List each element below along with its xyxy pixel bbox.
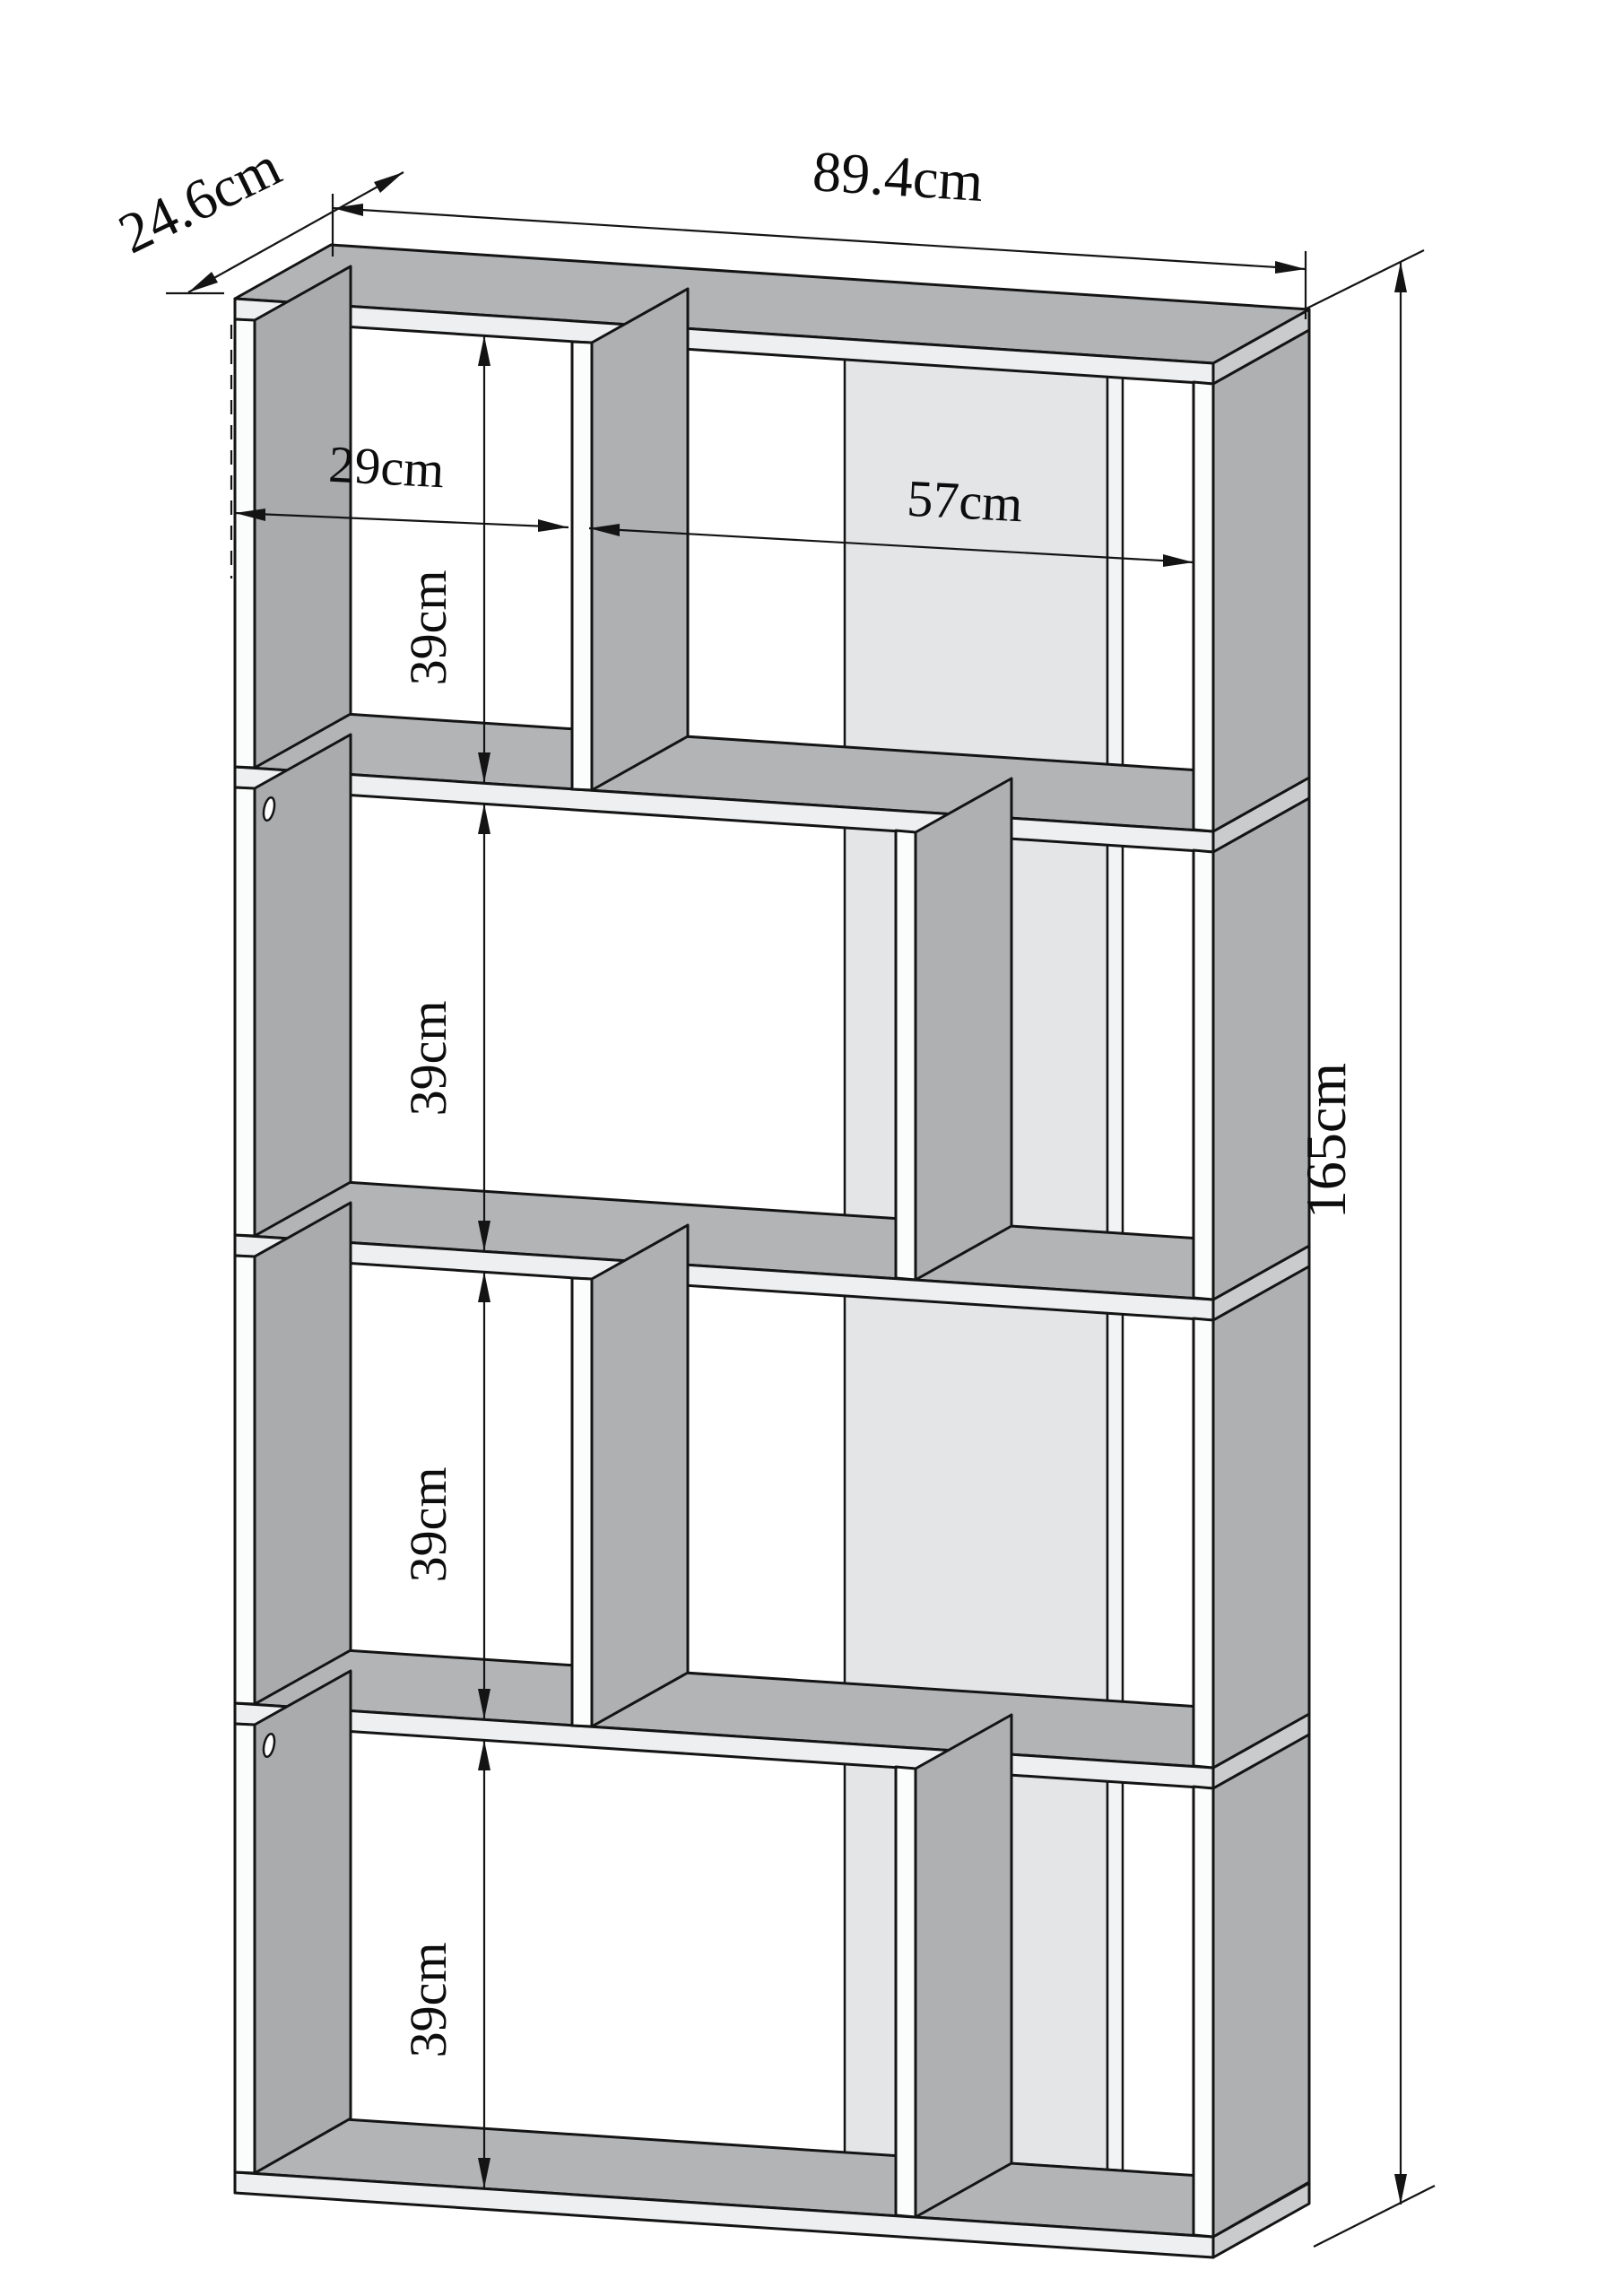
label-tier4-height: 39cm	[399, 1943, 457, 2058]
tier2-divider	[896, 778, 1011, 1280]
label-left-compartment: 29cm	[327, 435, 446, 500]
dim-tier2-height: 39cm	[399, 804, 490, 1251]
dim-tier4-height: 39cm	[399, 1740, 490, 2188]
bookshelf-dimension-drawing: 89.4cm 24.6cm 165cm 29cm 57cm 39cm	[0, 0, 1606, 2296]
tier3-divider	[572, 1225, 688, 1726]
tier1-divider	[572, 289, 688, 790]
dim-overall-height: 165cm	[1294, 250, 1435, 2247]
label-tier3-height: 39cm	[399, 1467, 457, 1583]
tier4-divider	[896, 1715, 1011, 2217]
label-overall-height: 165cm	[1294, 1063, 1358, 1219]
bottom-slab	[235, 2118, 1309, 2257]
tier3-right-end-panel	[1194, 1266, 1309, 1768]
page: 89.4cm 24.6cm 165cm 29cm 57cm 39cm	[0, 0, 1606, 2296]
label-tier2-height: 39cm	[399, 1001, 457, 1117]
label-overall-depth: 24.6cm	[109, 134, 291, 265]
tier4-right-end-panel	[1194, 1735, 1309, 2237]
tier3-left-end-panel	[235, 1203, 351, 1704]
tier1-right-end-panel	[1194, 330, 1309, 831]
label-right-compartment: 57cm	[906, 469, 1024, 534]
shelf-slab-3	[235, 1181, 1309, 1320]
label-tier1-height: 39cm	[399, 570, 457, 686]
dim-tier3-height: 39cm	[399, 1272, 490, 1719]
shelf-slab-2	[235, 713, 1309, 852]
tier2-left-end-panel	[235, 735, 351, 1236]
label-overall-width: 89.4cm	[811, 139, 985, 213]
shelf-slab-4	[235, 1649, 1309, 1788]
top-shelf-slab	[235, 245, 1309, 384]
dim-tier1-height: 39cm	[399, 335, 490, 783]
tier2-right-end-panel	[1194, 798, 1309, 1300]
tier4-left-end-panel	[235, 1671, 351, 2173]
